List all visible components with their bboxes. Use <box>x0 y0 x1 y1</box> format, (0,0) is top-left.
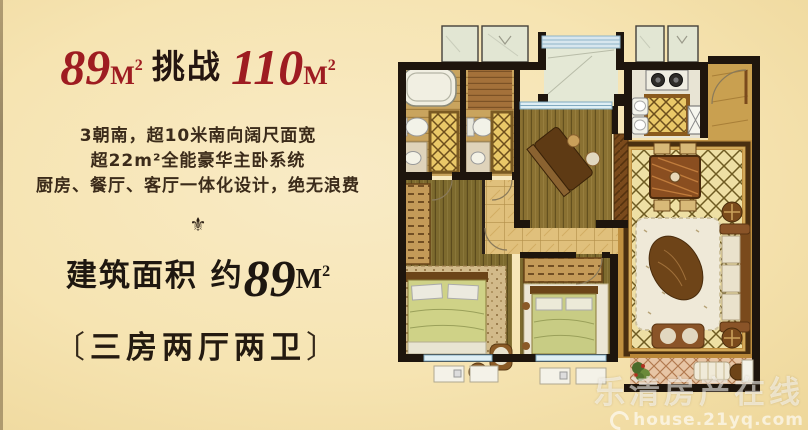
wall-right <box>752 140 760 390</box>
wall-top-niches <box>442 62 544 70</box>
wall-bedroom2-top-a <box>520 252 576 258</box>
watermark: 乐清房产在线 house.21yq.com <box>594 378 804 430</box>
wall-top-bath <box>398 62 444 70</box>
area-line: 建筑面积 约89M2 <box>22 250 374 306</box>
balcony-border <box>630 354 754 358</box>
bay-window-glass <box>542 36 620 48</box>
bed-sheet-edge <box>408 342 486 354</box>
burner-1-center <box>655 77 660 82</box>
niche-1 <box>442 26 478 62</box>
sofa-cushion-2 <box>722 265 740 292</box>
chair-2 <box>680 143 696 154</box>
headline-middle: 挑战 <box>152 47 222 86</box>
wall-top-kitchen <box>624 62 708 70</box>
pillow-4 <box>566 298 592 310</box>
shower-1 <box>430 112 458 172</box>
burner-2-center <box>673 77 678 82</box>
sink-basin-1 <box>405 152 421 165</box>
subtitle-block: 3朝南，超10米南向阔尺面宽 超22m²全能豪华主卧系统 厨房、餐厅、客厅一体化… <box>22 124 374 199</box>
sofa-cushion-1 <box>722 236 740 263</box>
tall-cabinet <box>614 134 628 224</box>
second-bed-headboard <box>530 286 598 294</box>
wall-hall-left <box>482 180 485 254</box>
watermark-url: house.21yq.com <box>633 412 804 429</box>
headline-number-110: 110 <box>231 39 303 95</box>
headline-unit-2: M2 <box>303 61 336 90</box>
sill-box-2 <box>470 366 498 382</box>
pillow-3 <box>536 298 562 310</box>
watermark-site-name: 乐清房产在线 <box>594 378 804 409</box>
sink-bowl-2 <box>635 120 646 130</box>
watermark-url-line: house.21yq.com <box>594 411 804 430</box>
pillow-2 <box>448 284 479 300</box>
wall-study-stub-right <box>596 220 628 228</box>
niche-3 <box>636 26 664 62</box>
area-number: 89 <box>244 251 296 308</box>
hallway-floor <box>482 180 514 228</box>
floorplan-drawing <box>396 6 796 398</box>
wall-study-right <box>612 106 618 134</box>
subtitle-line-1: 3朝南，超10米南向阔尺面宽 <box>22 124 374 149</box>
wall-study-stub-left <box>514 220 530 228</box>
layout-tag-text: 三房两厅两卫 <box>90 330 306 366</box>
headline-number-89: 89 <box>60 39 110 95</box>
sofa-back <box>740 232 750 324</box>
toilet-2 <box>473 118 493 136</box>
second-wardrobe <box>524 258 602 282</box>
sill-vent-2 <box>560 372 567 379</box>
wall-bedroom2-top-b <box>602 252 610 258</box>
flyer-card: 89M2 挑战 110M2 3朝南，超10米南向阔尺面宽 超22m²全能豪华主卧… <box>0 0 808 430</box>
shower-2 <box>492 112 512 172</box>
wall-bedroom2-right <box>610 254 618 362</box>
bedroom2-window <box>536 355 606 361</box>
sink-basin-2 <box>471 152 485 164</box>
fleur-de-lis-icon: ⚜ <box>22 214 374 236</box>
nightstand-2 <box>522 342 530 350</box>
niche-4 <box>668 26 698 62</box>
bracket-close: 〕 <box>306 330 342 366</box>
master-window <box>424 355 492 361</box>
subtitle-line-3: 厨房、餐厅、客厅一体化设计，绝无浪费 <box>22 174 374 199</box>
second-bath-tiles <box>468 64 512 110</box>
wall-kitchen-right <box>700 62 708 138</box>
table-dish <box>670 172 680 182</box>
sink-bowl-1 <box>635 101 646 111</box>
wall-entry-right <box>752 56 760 140</box>
pillow-1 <box>412 284 443 300</box>
headline: 89M2 挑战 110M2 <box>22 40 374 92</box>
sofa-cushion-3 <box>722 294 740 320</box>
toilet-1 <box>406 118 428 136</box>
wall-bath-bottom-a <box>398 172 432 180</box>
chair-4 <box>680 200 696 211</box>
bathtub <box>402 68 456 106</box>
wall-left <box>398 62 406 358</box>
chair-3 <box>654 200 670 211</box>
wall-bath-bottom-b <box>452 172 492 180</box>
subtitle-line-2: 超22m²全能豪华主卧系统 <box>22 149 374 174</box>
area-label: 建筑面积 约 <box>66 258 244 294</box>
wall-kitchen-left <box>624 62 632 140</box>
area-unit: M2 <box>296 264 330 295</box>
bay-window-interior <box>544 40 618 102</box>
loveseat-cushion-2 <box>682 328 698 344</box>
sofa-arm-top <box>720 224 750 234</box>
loveseat-cushion-1 <box>660 328 676 344</box>
wall-between-baths <box>460 62 466 176</box>
wall-study-left <box>514 106 520 222</box>
bracket-open: 〔 <box>54 330 90 366</box>
nightstand-1 <box>522 302 530 310</box>
headline-unit-1: M2 <box>110 61 143 90</box>
chair-1 <box>654 143 670 154</box>
sill-vent-1 <box>454 370 461 377</box>
layout-tag: 〔三房两厅两卫〕 <box>22 322 374 367</box>
kitchen-island <box>646 96 688 134</box>
